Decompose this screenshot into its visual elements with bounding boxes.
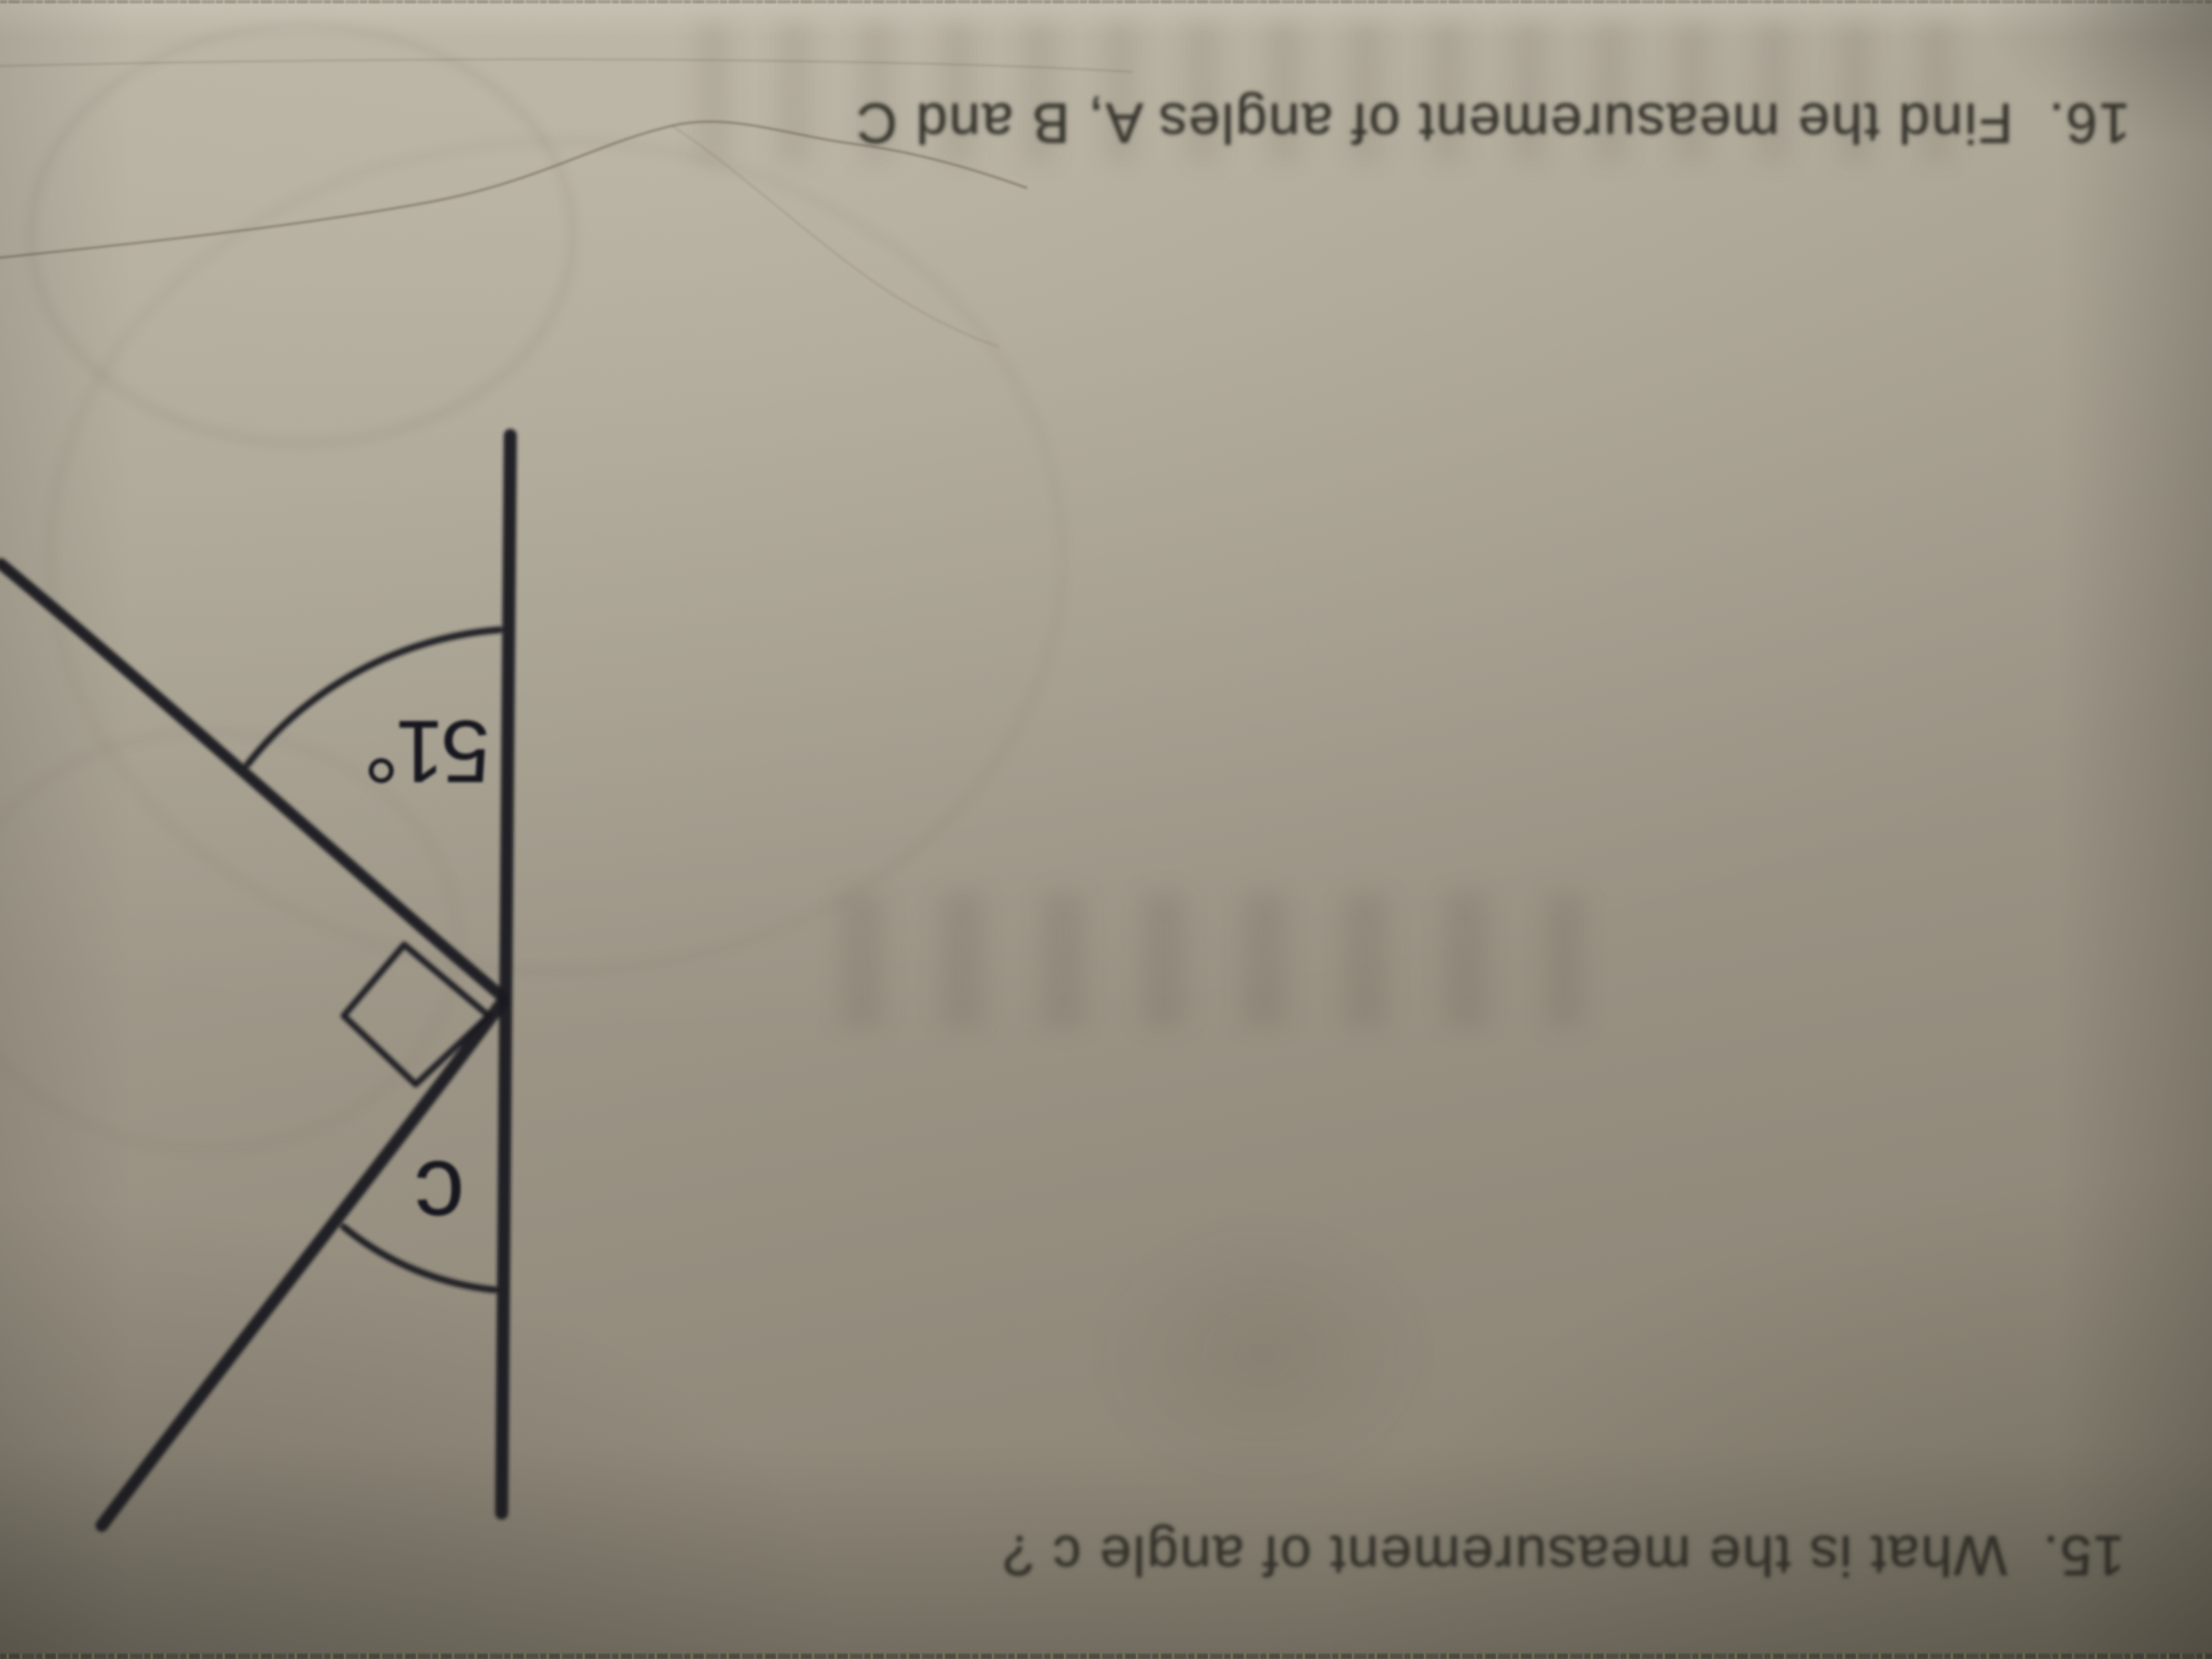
vignette-overlay	[0, 0, 2212, 1659]
worksheet-photo: 16. Find the measurement of angles A, B …	[0, 0, 2212, 1659]
photo-bottom-edge-artifact	[0, 1654, 2212, 1659]
photo-top-edge-artifact	[0, 0, 2212, 3]
